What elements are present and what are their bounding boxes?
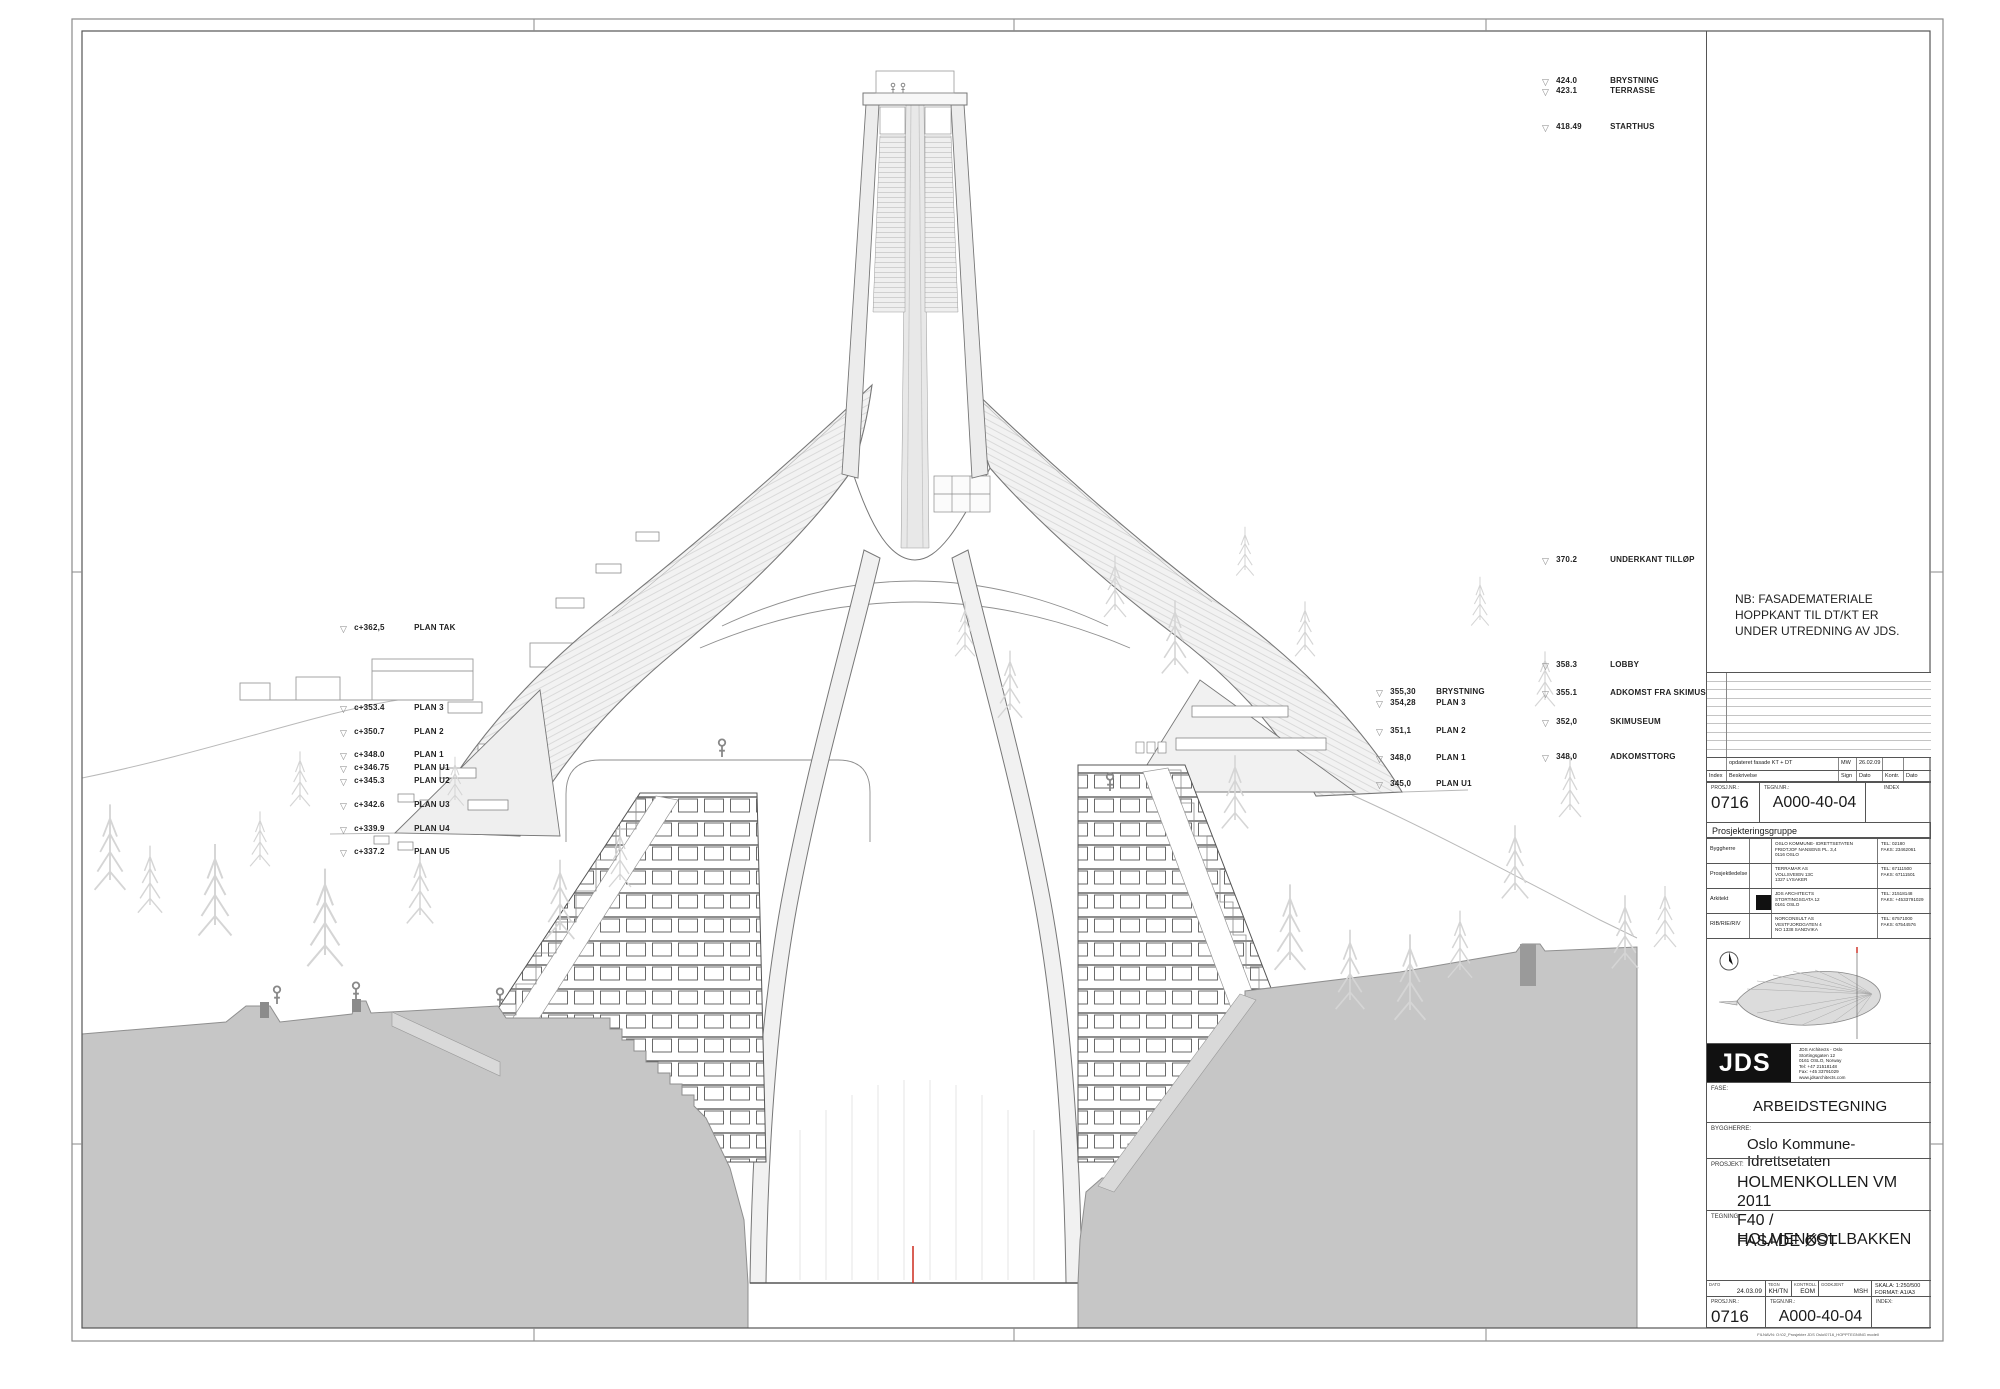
project-number: 0716 xyxy=(1711,793,1759,813)
level-marker: ▽c+346.75PLAN U1 xyxy=(340,762,450,773)
level-triangle-icon: ▽ xyxy=(1376,754,1383,765)
level-marker: ▽c+348.0PLAN 1 xyxy=(340,749,444,760)
level-triangle-icon: ▽ xyxy=(1542,718,1549,729)
level-marker: ▽352,0SKIMUSEUM xyxy=(1542,716,1661,727)
level-triangle-icon: ▽ xyxy=(340,848,347,859)
level-marker: ▽423.1TERRASSE xyxy=(1542,85,1655,96)
drawing-sheet: ▽c+362,5PLAN TAK ▽c+353.4PLAN 3 ▽c+350.7… xyxy=(0,0,2000,1389)
facade-note: NB: FASADEMATERIALE HOPPKANT TIL DT/KT E… xyxy=(1735,591,1899,639)
level-marker: ▽c+353.4PLAN 3 xyxy=(340,702,444,713)
level-marker: ▽355,30BRYSTNING xyxy=(1376,686,1485,697)
north-arrow-needle xyxy=(1729,952,1733,965)
revision-date: 26.02.09 xyxy=(1856,758,1882,770)
inrun-underside-lines xyxy=(700,581,1130,648)
level-marker: ▽c+345.3PLAN U2 xyxy=(340,775,450,786)
level-triangle-icon: ▽ xyxy=(340,777,347,788)
design-group-row: Arkitekt JDS ARCHITECTSSTORTINGSGATA 120… xyxy=(1707,888,1931,913)
title-block: NB: FASADEMATERIALE HOPPKANT TIL DT/KT E… xyxy=(1706,31,1930,1328)
phase-field: FASE: ARBEIDSTEGNING xyxy=(1707,1082,1931,1122)
logo-row: JDS JDS Architects - OsloStortingsgaten … xyxy=(1707,1043,1931,1082)
revision-sign: MW xyxy=(1838,758,1856,770)
drawing-title-value: FASADE ØST xyxy=(1737,1233,1837,1251)
level-triangle-icon: ▽ xyxy=(1376,780,1383,791)
level-triangle-icon: ▽ xyxy=(340,801,347,812)
level-marker: ▽345,0PLAN U1 xyxy=(1376,778,1472,789)
level-triangle-icon: ▽ xyxy=(1542,556,1549,567)
landing-texture xyxy=(800,1080,1034,1280)
level-triangle-icon: ▽ xyxy=(340,764,347,775)
design-group-row: Prosjektledelse TERRAMAR ASVOLLSVEIEN 13… xyxy=(1707,863,1931,888)
level-marker: ▽418.49STARTHUS xyxy=(1542,121,1655,132)
drawing-title-field: TEGNING: FASADE ØST xyxy=(1707,1210,1931,1280)
level-marker: ▽c+362,5PLAN TAK xyxy=(340,622,456,633)
level-triangle-icon: ▽ xyxy=(1542,661,1549,672)
revision-header: Index Beskrivelse Sign Dato Kontr. Dato xyxy=(1707,770,1931,782)
design-group-header: Prosjekteringsgruppe xyxy=(1707,822,1931,838)
level-triangle-icon: ▽ xyxy=(340,704,347,715)
drawing-ids-top: PROSJ.NR.:0716 TEGN.NR.:A000-40-04 INDEX xyxy=(1707,782,1931,822)
site-plan-drawing xyxy=(1707,939,1931,1044)
client-field: BYGGHERRE: Oslo Kommune-Idrettsetaten xyxy=(1707,1122,1931,1158)
level-triangle-icon: ▽ xyxy=(1542,87,1549,98)
level-marker: ▽355.1ADKOMST FRA SKIMUSEUM xyxy=(1542,687,1724,698)
level-triangle-icon: ▽ xyxy=(1542,753,1549,764)
level-marker: ▽351,1PLAN 2 xyxy=(1376,725,1466,736)
design-group-row: RIB/RIE/RIV NORCONSULT ASVESTFJORDGATEN … xyxy=(1707,913,1931,938)
level-marker: ▽c+339.9PLAN U4 xyxy=(340,823,450,834)
revision-row: opdateret fasade KT + DT MW 26.02.09 xyxy=(1707,757,1931,770)
revision-description: opdateret fasade KT + DT xyxy=(1726,758,1838,770)
project-number: 0716 xyxy=(1711,1307,1765,1327)
level-marker: ▽370.2UNDERKANT TILLØP xyxy=(1542,554,1695,565)
file-path: FILNAVN: O:\02_Prosjekter JDS Oslo\0716_… xyxy=(1706,1329,1930,1344)
level-triangle-icon: ▽ xyxy=(340,825,347,836)
level-triangle-icon: ▽ xyxy=(1542,689,1549,700)
level-marker: ▽c+337.2PLAN U5 xyxy=(340,846,450,857)
jds-logo: JDS xyxy=(1707,1044,1791,1082)
drawing-number: A000-40-04 xyxy=(1764,794,1865,812)
level-marker: ▽358.3LOBBY xyxy=(1542,659,1639,670)
site-plan xyxy=(1707,938,1931,1043)
level-marker: ▽c+342.6PLAN U3 xyxy=(340,799,450,810)
revision-empty-rows xyxy=(1707,672,1931,757)
lobby-glazing xyxy=(934,476,990,512)
architect-mark xyxy=(1756,895,1771,910)
level-triangle-icon: ▽ xyxy=(340,751,347,762)
drawing-ids-bottom: PROSJ.NR.:0716 TEGN.NR.:A000-40-04 INDEX… xyxy=(1707,1296,1931,1328)
project-field: PROSJEKT: HOLMENKOLLEN VM 2011F40 / HOLM… xyxy=(1707,1158,1931,1210)
trees xyxy=(95,527,1676,1020)
level-triangle-icon: ▽ xyxy=(340,728,347,739)
drawing-number: A000-40-04 xyxy=(1770,1308,1871,1326)
architect-address: JDS Architects - OsloStortingsgaten 1201… xyxy=(1799,1047,1845,1081)
level-triangle-icon: ▽ xyxy=(340,624,347,635)
level-marker: ▽354,28PLAN 3 xyxy=(1376,697,1466,708)
info-bar: DATO24.03.09 TEGNKH/TN KONTROLLEOM GODKJ… xyxy=(1707,1280,1931,1296)
level-triangle-icon: ▽ xyxy=(1542,123,1549,134)
level-triangle-icon: ▽ xyxy=(1376,699,1383,710)
level-marker: ▽348,0PLAN 1 xyxy=(1376,752,1466,763)
phase-value: ARBEIDSTEGNING xyxy=(1753,1098,1887,1115)
level-marker: ▽348,0ADKOMSTTORG xyxy=(1542,751,1676,762)
starthus-railing xyxy=(876,71,954,93)
design-group-row: Byggherre OSLO KOMMUNE- IDRETTSETATENFRI… xyxy=(1707,838,1931,863)
level-marker: ▽c+350.7PLAN 2 xyxy=(340,726,444,737)
level-triangle-icon: ▽ xyxy=(1376,727,1383,738)
